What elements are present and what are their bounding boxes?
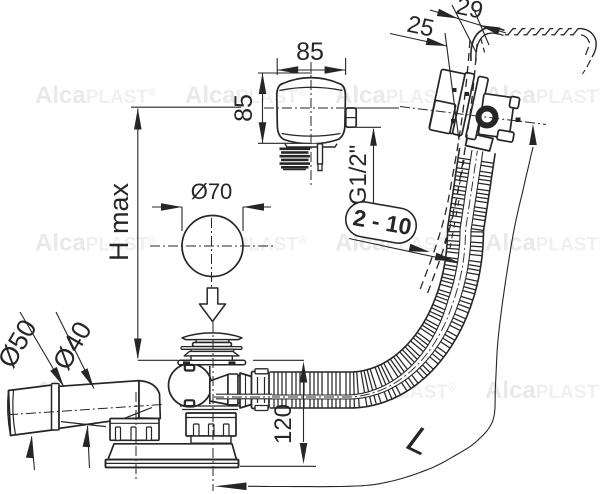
svg-text:120: 120 — [270, 404, 297, 444]
svg-text:G1/2": G1/2" — [345, 145, 372, 206]
svg-text:AlcaPLAST®: AlcaPLAST® — [485, 377, 600, 404]
svg-text:AlcaPLAST®: AlcaPLAST® — [485, 230, 600, 257]
svg-text:H max: H max — [104, 183, 134, 262]
svg-text:AlcaPLAST®: AlcaPLAST® — [35, 82, 156, 109]
svg-text:85: 85 — [230, 94, 258, 122]
svg-text:85: 85 — [296, 38, 324, 66]
svg-text:Ø70: Ø70 — [191, 179, 233, 204]
